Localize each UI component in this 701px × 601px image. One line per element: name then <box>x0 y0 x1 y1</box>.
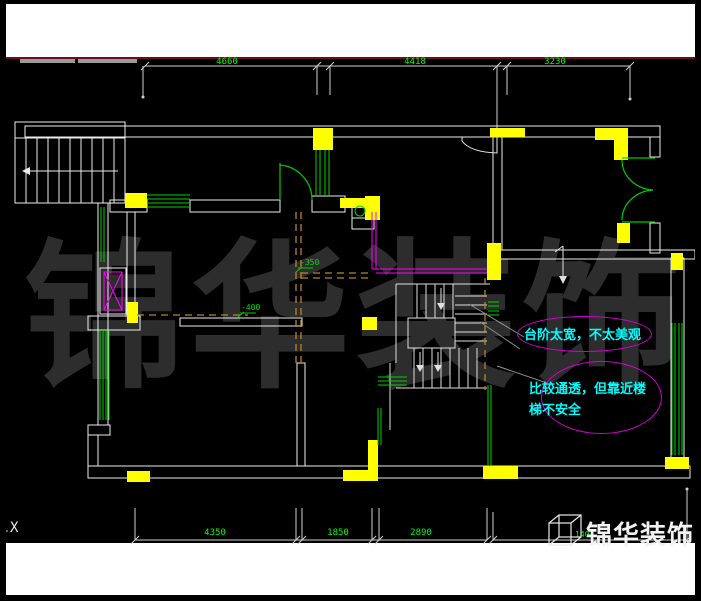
external-staircase <box>15 122 125 203</box>
annotation-text-2: 比较通透，但靠近楼梯不安全 <box>529 379 655 421</box>
level-note-2: -400 <box>241 303 260 312</box>
dashed-lines <box>137 212 485 390</box>
single-door <box>280 163 312 200</box>
dim-top-3: 3230 <box>533 57 577 67</box>
ucs-axis-label: X <box>10 520 18 536</box>
cad-canvas: 锦华装饰 <box>0 0 701 601</box>
central-staircase <box>390 284 490 430</box>
dim-top-2: 4418 <box>393 57 437 67</box>
dim-bottom-2: 1850 <box>316 528 360 538</box>
floor-plan-drawing <box>0 0 701 601</box>
dim-bottom-1: 4350 <box>193 528 237 538</box>
frame-left <box>0 0 6 601</box>
cube-wireframe-icon <box>543 511 589 549</box>
double-door <box>622 158 655 222</box>
frame-top <box>0 0 701 4</box>
dim-top-1: 4660 <box>205 57 249 67</box>
frame-bottom <box>0 595 701 601</box>
dim-bottom-3: 2890 <box>399 528 443 538</box>
frame-right <box>695 0 701 601</box>
company-logo-text: 锦华装饰 <box>586 515 694 552</box>
entry-arrow <box>555 246 567 284</box>
level-note-1: -350 <box>300 258 319 267</box>
annotation-text-1: 台阶太宽，不太美观 <box>524 325 654 346</box>
